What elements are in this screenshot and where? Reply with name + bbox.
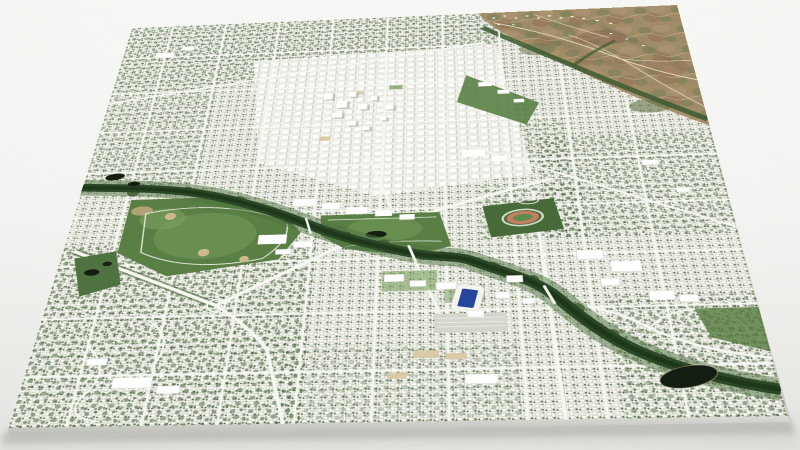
hospital-campus — [462, 149, 486, 157]
map-plane — [8, 5, 788, 428]
capitol-building — [389, 80, 403, 90]
map-render-stage — [0, 0, 800, 450]
satellite-map — [8, 5, 788, 428]
